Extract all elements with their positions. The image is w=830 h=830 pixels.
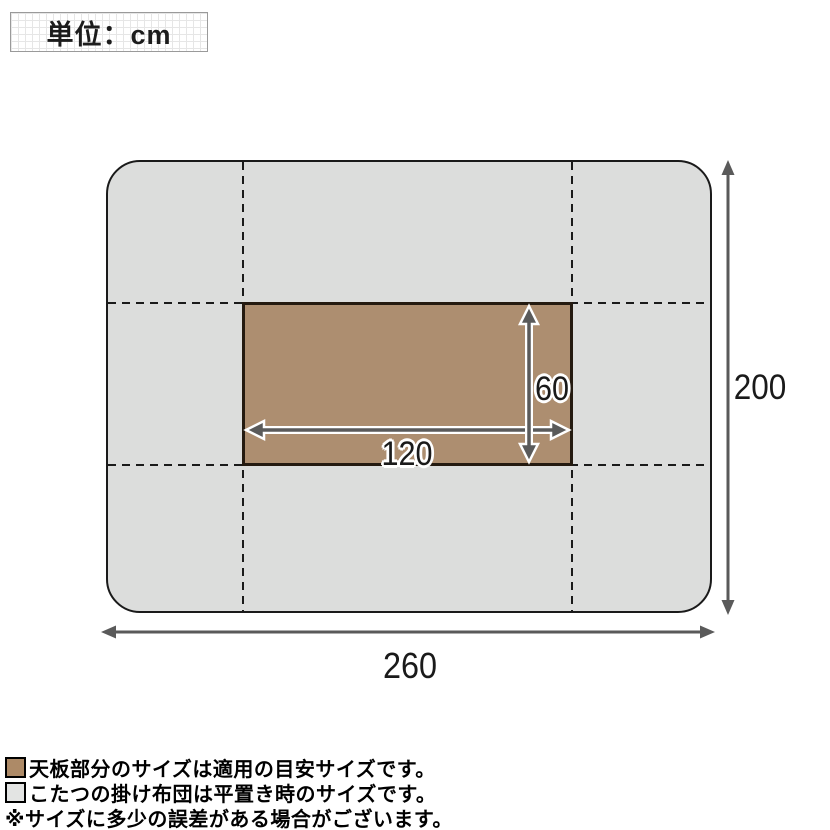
legend-note: ※サイズに多少の誤差がある場合がございます。 bbox=[5, 803, 453, 830]
legend-item-tabletop: 天板部分のサイズは適用の目安サイズです。 bbox=[5, 755, 825, 780]
kotatsu-size-diagram: 単位：cm 12 bbox=[0, 0, 830, 830]
tabletop-color-swatch bbox=[5, 757, 26, 778]
unit-label: 単位：cm bbox=[46, 13, 171, 52]
legend-note-row: ※サイズに多少の誤差がある場合がございます。 bbox=[5, 805, 825, 830]
futon-color-swatch bbox=[5, 782, 26, 803]
dim-label-tabletop-height: 60 bbox=[525, 372, 579, 406]
futon-width-arrow-icon bbox=[101, 626, 715, 639]
legend-item-futon: こたつの掛け布団は平置き時のサイズです。 bbox=[5, 780, 825, 805]
unit-box: 単位：cm bbox=[10, 12, 208, 52]
dim-label-futon-height: 200 bbox=[729, 370, 792, 405]
legend: 天板部分のサイズは適用の目安サイズです。 こたつの掛け布団は平置き時のサイズです… bbox=[5, 755, 825, 830]
dim-label-futon-width: 260 bbox=[356, 648, 464, 684]
dim-label-tabletop-width: 120 bbox=[353, 437, 461, 471]
